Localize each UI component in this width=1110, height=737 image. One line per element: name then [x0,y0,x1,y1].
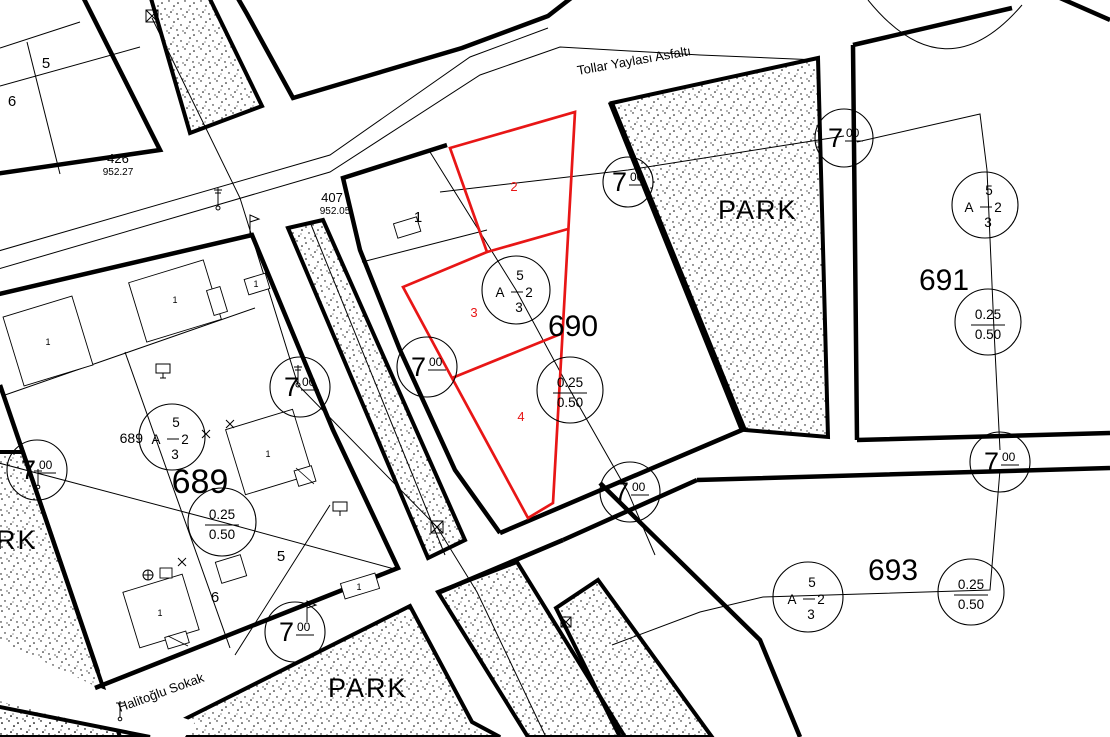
kaks-value: 0.50 [958,597,984,612]
elevation-407: 952.05 [320,206,351,217]
side-setback: 3 [807,607,815,622]
building-label: 1 [45,337,50,347]
taks-value: 0.25 [557,375,583,390]
building-label: 1 [356,582,361,592]
cadastral-map-page: 5 A 2 3 5 A 2 3 5 A 2 3 5 A 2 3 689 0.25… [0,0,1110,737]
parcel-5-label-689: 5 [277,548,285,565]
shed-icon [160,568,172,578]
taks-value: 0.25 [975,307,1001,322]
elevation-426: 952.27 [103,167,134,178]
utility-pole-icon [214,188,222,210]
taks-value: 0.25 [209,507,235,522]
park-label-bottom: PARK [328,673,408,703]
side-setback: 3 [171,447,179,462]
park-label-top: PARK [718,195,798,225]
sign-icon [156,364,170,378]
road-width-marker: 7 00 [815,109,873,167]
road-width-sup: 00 [39,458,53,472]
sign-icon [333,502,347,516]
block-label-426: 426 [107,151,129,166]
ratio-marker: 0.25 0.50 [955,289,1021,355]
road-width-sup: 00 [632,480,646,494]
road-width-sup: 00 [302,375,316,389]
cadastral-map: 5 A 2 3 5 A 2 3 5 A 2 3 5 A 2 3 689 0.25… [0,0,1110,737]
front-setback: 5 [808,575,816,590]
storeys: 2 [994,200,1002,215]
road-width-num: 7 [828,123,843,153]
road-width-num: 7 [21,455,36,485]
zoning-marker-a2: 5 A 2 3 [952,172,1018,238]
corner-block-ne [1060,0,1110,20]
block-top-middle-outline [236,0,575,98]
front-setback: 5 [516,268,524,283]
kaks-value: 0.50 [557,395,583,410]
red-subdivision-inner-lines [452,229,568,378]
front-setback: 5 [985,183,993,198]
road-width-num: 7 [984,447,999,477]
block-label-690: 690 [548,310,598,343]
road-width-sup: 00 [846,126,860,140]
road-width-num: 7 [612,167,627,197]
road-width-num: 7 [284,372,299,402]
side-setback: 3 [515,300,523,315]
nizam: A [787,592,796,607]
nizam: A [964,200,973,215]
red-parcel-4-label: 4 [517,409,524,424]
front-setback: 5 [172,415,180,430]
nizam: A [495,285,504,300]
building-label: 1 [253,279,258,289]
block-426-outline [0,0,160,174]
building-label: 1 [157,608,162,618]
building-label: 1 [172,295,177,305]
block-label-693: 693 [868,554,918,587]
nizam: A [151,432,160,447]
block-label-407: 407 [321,190,343,205]
parcel-5-label-426: 5 [42,55,50,72]
storeys: 2 [525,285,533,300]
red-parcel-3-label: 3 [470,305,477,320]
storeys: 2 [817,592,825,607]
block-label-689: 689 [172,463,229,501]
kaks-value: 0.50 [209,527,235,542]
zoning-marker-a2: 5 A 2 3 [139,404,205,470]
road-width-num: 7 [411,352,426,382]
block-689-ref-label: 689 [120,430,144,446]
zoning-marker-a2: 5 A 2 3 [773,562,843,632]
ratio-marker: 0.25 0.50 [938,559,1004,625]
road-width-sup: 00 [429,355,443,369]
park-label-left-partial: RK [0,525,38,555]
parcel-6-label-689: 6 [211,589,219,606]
block-label-691: 691 [919,264,969,297]
road-width-num: 7 [614,477,629,507]
block-691-outline [853,8,1110,440]
road-width-sup: 00 [297,620,311,634]
red-parcel-2-label: 2 [510,179,517,194]
building-label: 1 [265,449,270,459]
cadastral-line-693 [612,470,1000,645]
building-annex [215,555,246,584]
road-width-num: 7 [279,617,294,647]
road-width-sup: 00 [1002,450,1016,464]
road-width-sup: 00 [630,170,644,184]
side-setback: 3 [984,215,992,230]
manhole-icon [143,570,153,580]
parcel-1-label: 1 [414,209,422,226]
storeys: 2 [181,432,189,447]
parcel-6-label-426: 6 [8,93,16,110]
taks-value: 0.25 [958,577,984,592]
kaks-value: 0.50 [975,327,1001,342]
park-bottom-area [180,606,500,737]
stipple-strip-top [150,0,262,133]
parcel-1-line [362,230,487,262]
